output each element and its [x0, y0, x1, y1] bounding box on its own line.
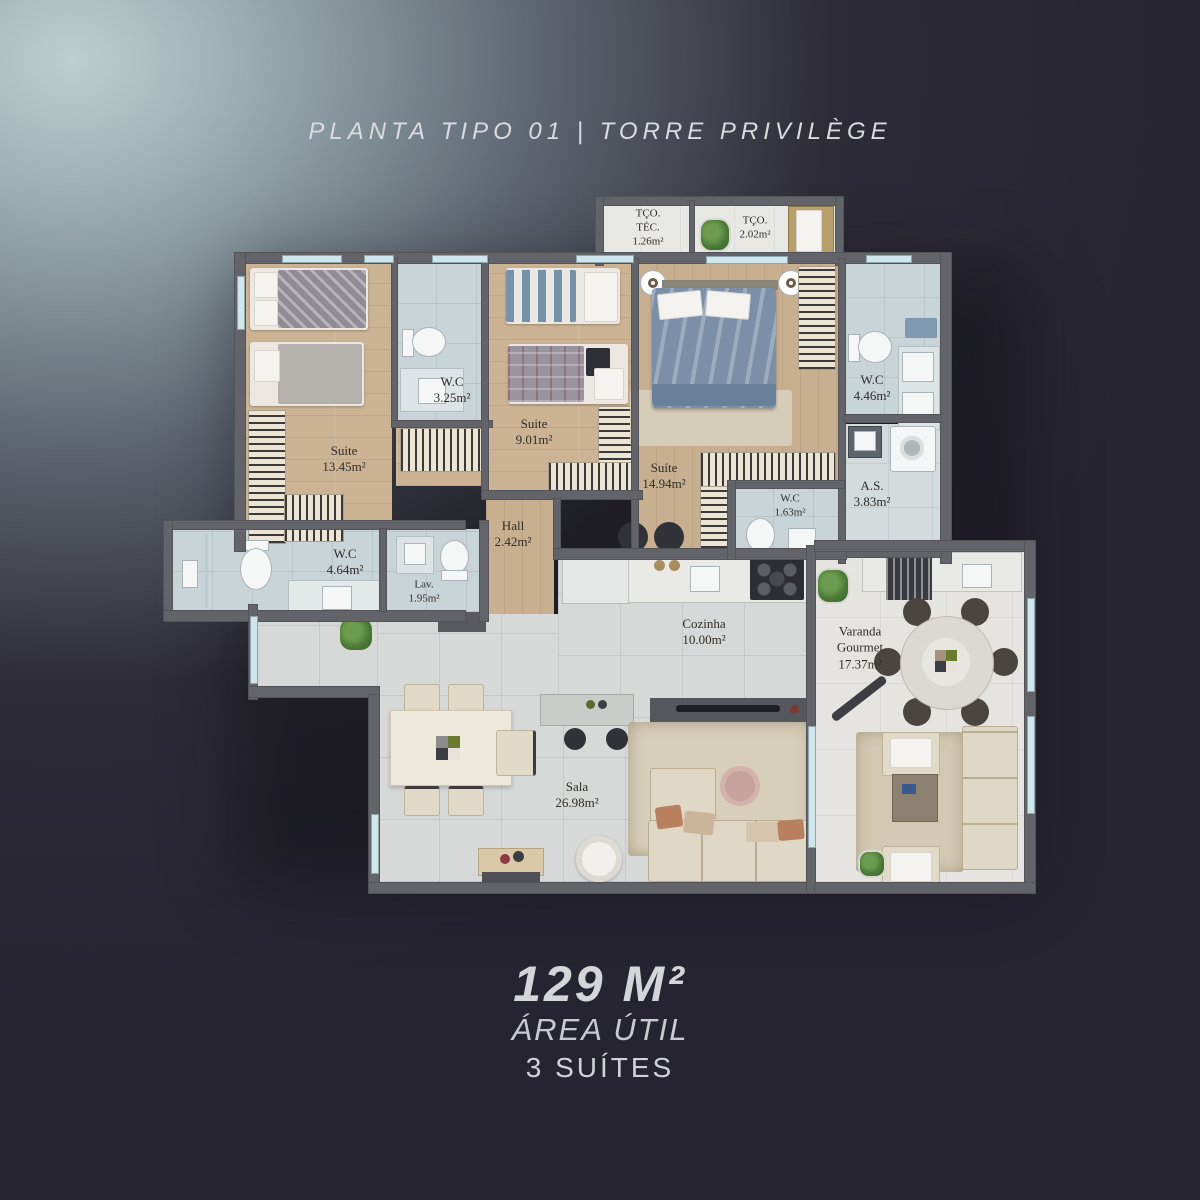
sink	[902, 352, 934, 382]
throw-pillow	[655, 804, 684, 829]
window	[1027, 716, 1035, 814]
wall	[481, 490, 643, 500]
room-label-varanda-gourmet: Varanda Gourmet17.37m²	[837, 624, 883, 673]
plant	[701, 220, 729, 250]
wall	[248, 686, 380, 698]
room-label-wc-social: W.C4.64m²	[327, 546, 364, 579]
window	[282, 255, 342, 263]
plant	[818, 570, 848, 602]
bowl	[669, 560, 680, 571]
dining-chair	[990, 648, 1018, 676]
bottle	[598, 700, 607, 709]
window	[866, 255, 912, 263]
wall	[838, 258, 846, 564]
throw-pillow	[683, 810, 715, 835]
throw-pillow	[746, 822, 780, 842]
toilet-tank	[441, 570, 468, 581]
bowl	[654, 560, 665, 571]
toilet	[240, 548, 272, 590]
stool	[606, 728, 628, 750]
window	[432, 255, 488, 263]
centerpiece	[436, 736, 460, 760]
pillow	[254, 272, 278, 298]
pillow	[254, 350, 280, 382]
toilet	[440, 540, 469, 574]
sofa	[962, 726, 1018, 870]
wall	[814, 882, 1036, 894]
pouf	[720, 766, 760, 806]
room-label-wc-suite-1: W.C3.25m²	[434, 374, 471, 407]
dining-chair	[448, 786, 484, 816]
centerpiece	[935, 650, 957, 672]
window	[237, 276, 245, 330]
armchair	[496, 730, 536, 776]
bottle	[500, 854, 510, 864]
room-label-cozinha: Cozinha10.00m²	[682, 616, 725, 649]
bed-blanket	[508, 346, 584, 402]
wardrobe	[400, 428, 484, 472]
window	[364, 255, 394, 263]
pillow	[657, 290, 703, 320]
plant	[860, 852, 884, 876]
dining-chair	[404, 786, 440, 816]
wardrobe	[284, 494, 344, 542]
towel	[905, 318, 937, 338]
bottle	[513, 851, 524, 862]
window	[250, 616, 258, 684]
room-label-suite-3: Suíte14.94m²	[642, 460, 685, 493]
toilet	[746, 518, 775, 552]
washer-drum	[900, 436, 924, 460]
bed-throw	[652, 384, 776, 406]
wall	[481, 258, 489, 500]
wall	[479, 520, 489, 622]
toilet	[858, 331, 892, 363]
sink	[404, 543, 426, 565]
toilet	[412, 327, 446, 357]
wall	[368, 882, 817, 894]
wall	[727, 480, 845, 489]
wall	[844, 414, 942, 423]
room-label-sala: Sala26.98m²	[555, 779, 598, 812]
armchair-cushion	[890, 852, 932, 882]
book	[902, 784, 916, 794]
wall	[631, 258, 639, 558]
sink	[962, 564, 992, 588]
wall	[940, 252, 952, 564]
area-value: 129 M²	[0, 955, 1200, 1013]
window	[371, 814, 379, 874]
floor-plan-poster: PLANTA TIPO 01 | TORRE PRIVILÈGE	[0, 0, 1200, 1200]
wall	[391, 420, 493, 428]
pillow	[584, 272, 618, 322]
suites-count: 3 SUÍTES	[0, 1052, 1200, 1084]
bottle	[586, 700, 595, 709]
room-label-tco: TÇO.2.02m²	[739, 214, 770, 242]
cooktop	[750, 558, 804, 600]
area-label: ÁREA ÚTIL	[0, 1012, 1200, 1048]
side-table	[576, 836, 622, 882]
floor-hall	[486, 498, 554, 616]
wall	[595, 196, 844, 206]
room-label-hall: Hall2.42m²	[495, 518, 532, 551]
room-label-wc-suite-2: W.C1.63m²	[774, 492, 805, 520]
wall	[163, 610, 466, 622]
decor-vase	[790, 705, 799, 714]
armchair-cushion	[890, 738, 932, 768]
room-label-lavabo: Lav.1.95m²	[408, 578, 439, 606]
window	[576, 255, 634, 263]
plant	[340, 618, 372, 650]
sink	[322, 586, 352, 610]
room-label-area-servico: A.S.3.83m²	[854, 478, 891, 511]
page-title: PLANTA TIPO 01 | TORRE PRIVILÈGE	[0, 118, 1200, 146]
refrigerator	[562, 556, 630, 604]
tank-sink	[854, 431, 876, 451]
kitchen-sink	[690, 566, 720, 592]
bed-blanket	[278, 344, 362, 404]
wall	[391, 258, 398, 428]
throw-pillow	[777, 819, 805, 841]
barbecue-grill	[886, 556, 932, 600]
window	[706, 256, 788, 264]
kitchen-island	[540, 694, 634, 726]
wall	[553, 548, 847, 560]
stool	[564, 728, 586, 750]
pillow	[705, 290, 751, 320]
pillow	[254, 300, 278, 326]
pillow	[594, 368, 624, 400]
wall	[163, 520, 173, 622]
tv	[676, 705, 780, 712]
room-label-suite-1: Suite13.45m²	[322, 443, 365, 476]
wall	[727, 480, 736, 560]
bed-blanket	[278, 270, 366, 328]
lounger-cushion	[796, 210, 822, 252]
wall	[163, 520, 466, 530]
window	[1027, 598, 1035, 692]
wall	[814, 540, 1036, 552]
room-label-wc-suite-3: W.C4.46m²	[854, 372, 891, 405]
coffee-table	[892, 774, 938, 822]
shower-glass	[205, 534, 208, 608]
shower-fixture	[182, 560, 198, 588]
wardrobe	[598, 406, 634, 468]
glass-door	[808, 726, 816, 848]
room-label-tco-tec: TÇO. TÉC.1.26m²	[632, 207, 663, 248]
room-label-suite-2: Suite9.01m²	[516, 416, 553, 449]
wall	[379, 528, 387, 612]
bed-blanket	[506, 270, 576, 322]
wardrobe	[798, 266, 836, 370]
